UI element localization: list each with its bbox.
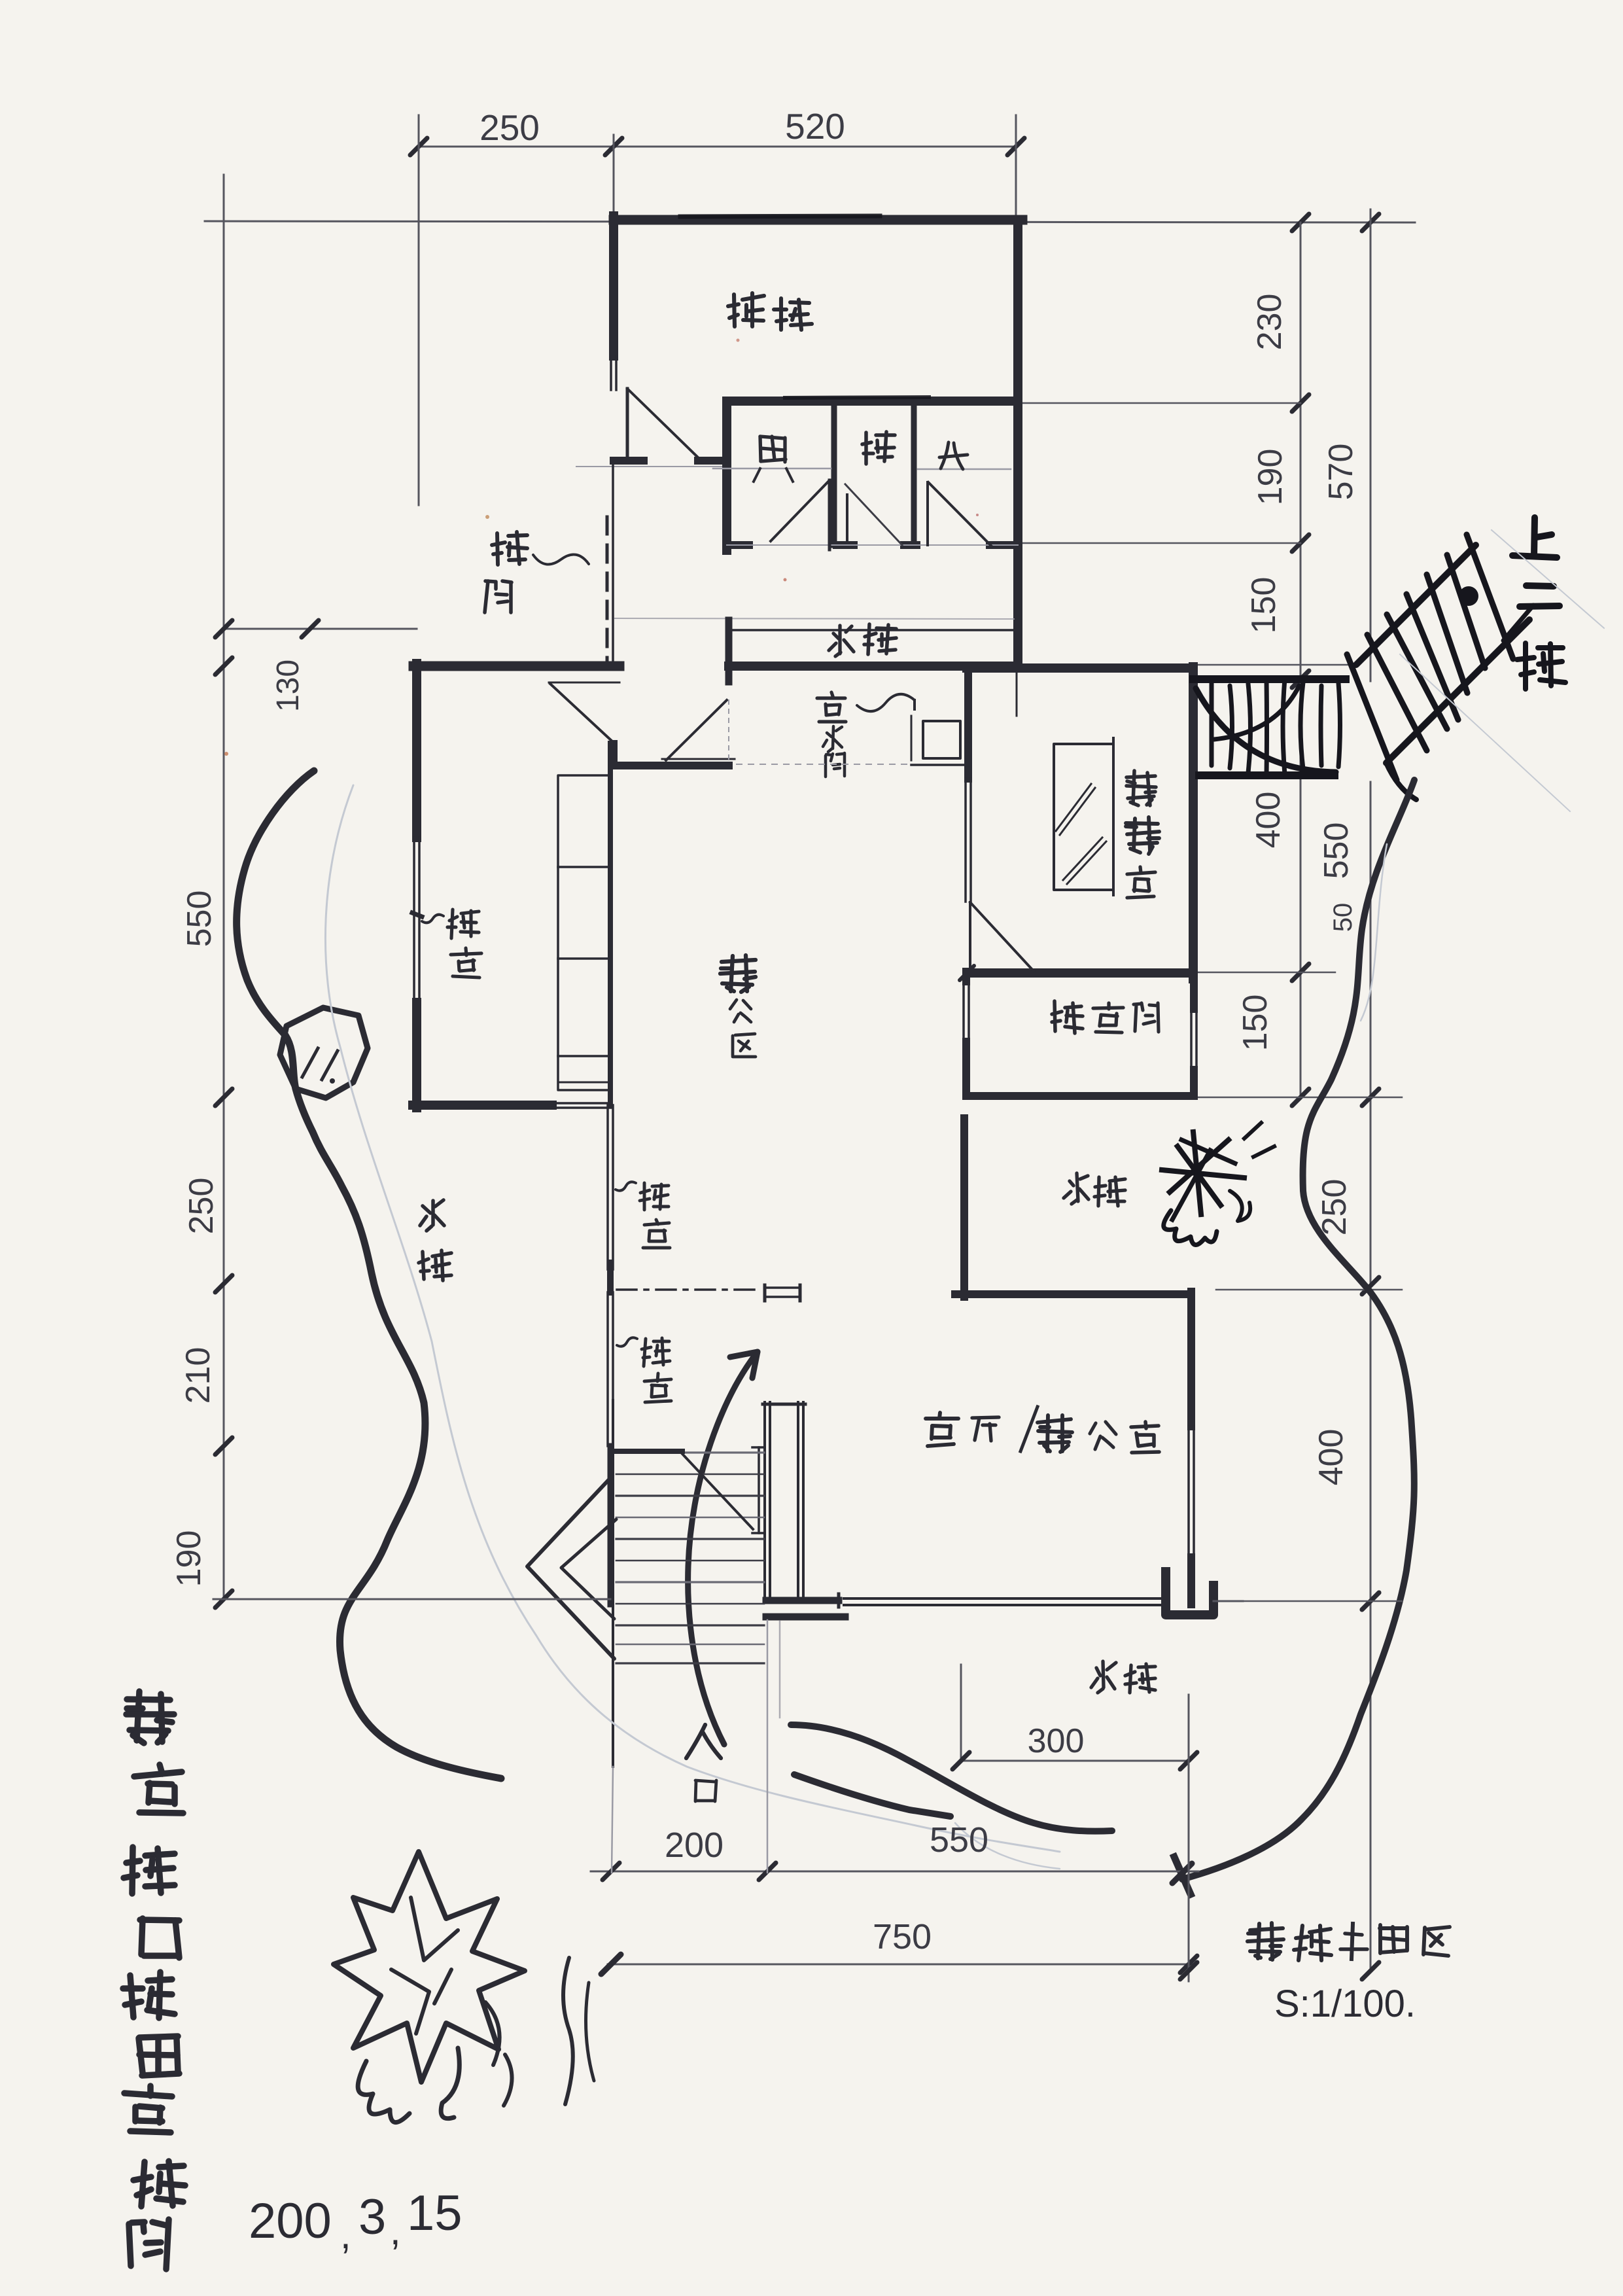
svg-text:230: 230: [1251, 294, 1289, 351]
svg-text:300: 300: [1028, 1722, 1085, 1760]
svg-text:50: 50: [1329, 903, 1357, 932]
svg-text:550: 550: [930, 1820, 988, 1860]
svg-text:550: 550: [181, 891, 218, 947]
svg-text:210: 210: [179, 1347, 217, 1404]
svg-text:,: ,: [390, 2209, 401, 2253]
svg-text:250: 250: [480, 107, 540, 148]
svg-text:570: 570: [1322, 444, 1360, 501]
svg-text:200: 200: [665, 1826, 724, 1865]
svg-text:15: 15: [407, 2185, 462, 2241]
svg-text:150: 150: [1245, 577, 1283, 634]
svg-text:250: 250: [183, 1178, 220, 1235]
svg-text:750: 750: [873, 1917, 932, 1956]
svg-text:400: 400: [1312, 1429, 1350, 1486]
svg-text:3: 3: [358, 2189, 386, 2245]
svg-text:190: 190: [1251, 449, 1289, 506]
svg-text:250: 250: [1316, 1179, 1353, 1236]
svg-text:130: 130: [271, 660, 305, 712]
svg-text:S:1/100.: S:1/100.: [1274, 1983, 1416, 2025]
svg-text:190: 190: [170, 1530, 208, 1587]
svg-text:,: ,: [340, 2213, 351, 2257]
svg-text:520: 520: [785, 106, 845, 147]
svg-text:550: 550: [1318, 822, 1355, 879]
svg-text:200: 200: [249, 2193, 332, 2249]
svg-text:400: 400: [1249, 792, 1287, 849]
svg-text:150: 150: [1236, 995, 1274, 1051]
